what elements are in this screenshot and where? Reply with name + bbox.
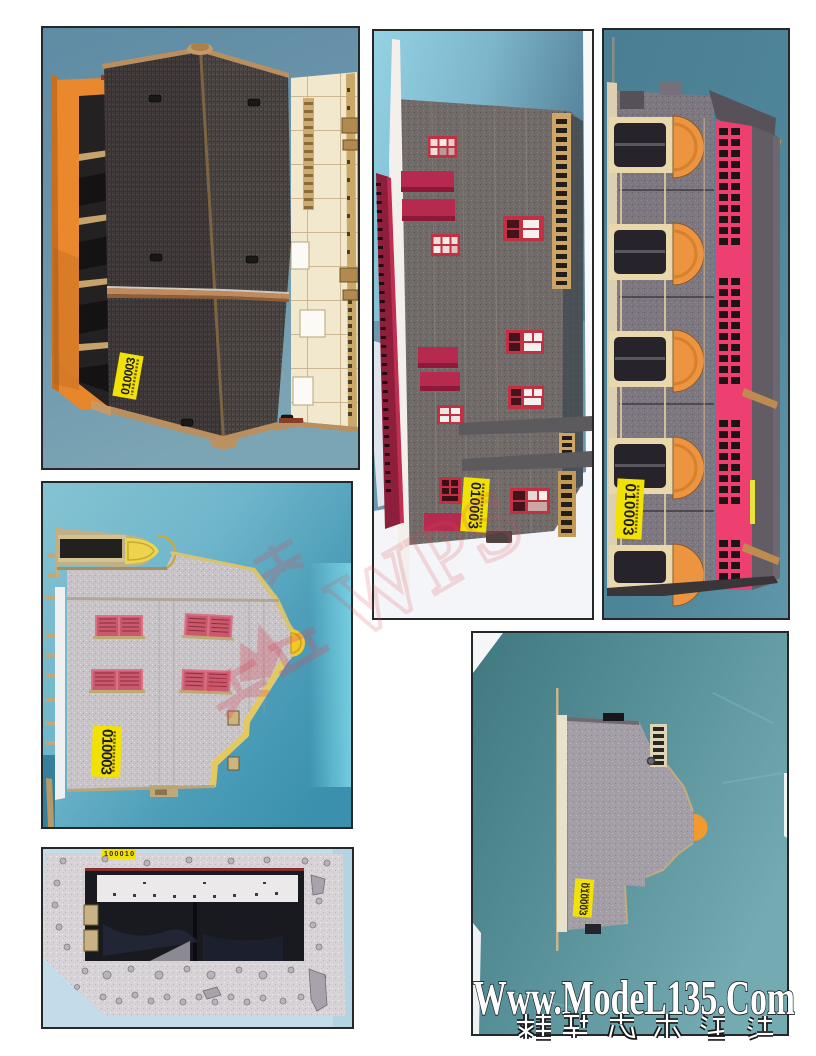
svg-text:010003: 010003	[465, 481, 484, 529]
svg-text:010003: 010003	[576, 882, 589, 916]
svg-text:Www.ModeL135.Com: Www.ModeL135.Com	[473, 970, 795, 1025]
svg-text:010003: 010003	[619, 483, 639, 536]
svg-text:010003: 010003	[97, 729, 116, 776]
svg-text:100010: 100010	[104, 851, 134, 858]
